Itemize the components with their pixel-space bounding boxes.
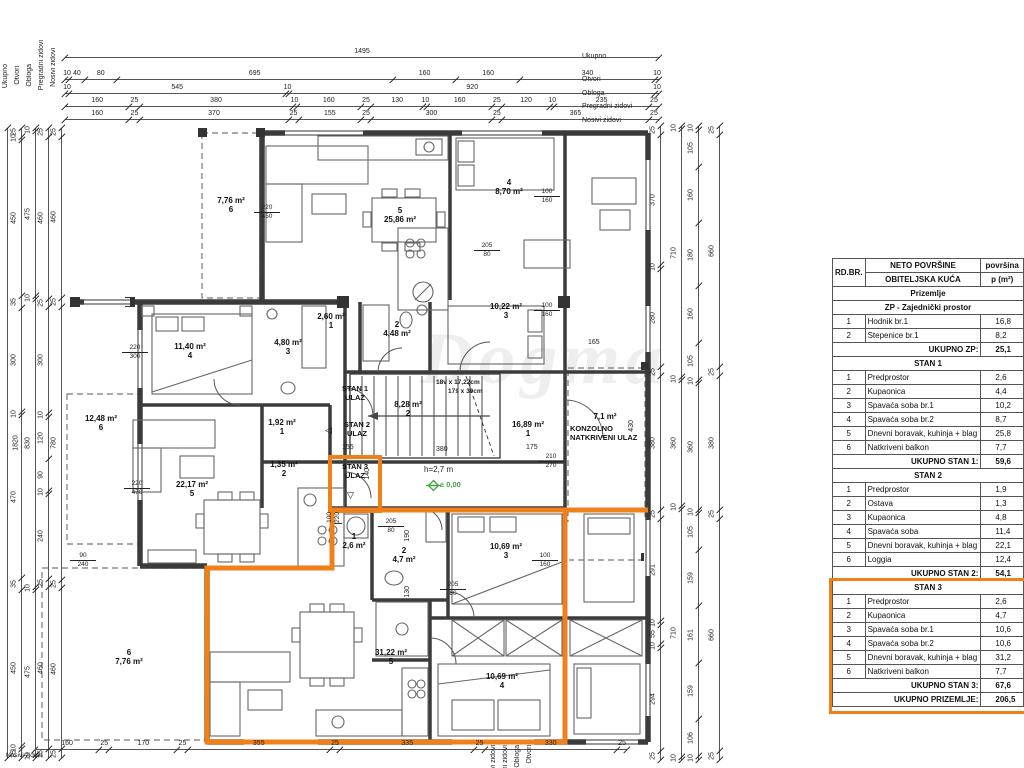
text-label: Predprostor <box>865 483 981 497</box>
dim-value: 159 <box>688 573 695 585</box>
rect-shape <box>260 514 268 528</box>
room-label-bath-47: 24,7 m² <box>380 546 428 564</box>
rect-shape <box>210 652 290 682</box>
dim-value: 460 <box>38 212 45 224</box>
dim-value: 10 <box>688 124 695 132</box>
dim-value: 25 <box>650 752 657 760</box>
ellipse-shape <box>385 571 403 585</box>
room-number: 6 <box>70 423 132 432</box>
rect-shape <box>437 212 445 227</box>
dim-line <box>48 128 49 758</box>
rect-shape <box>528 336 542 358</box>
text-label: 1 <box>833 371 866 385</box>
circle-shape <box>396 623 408 635</box>
dim-value: 25 <box>38 299 45 307</box>
text-label: 80 <box>474 250 500 259</box>
tbody-shape: STAN 31Predprostor2,62Kupaonica4,73Spava… <box>833 581 1024 693</box>
floorplan-canvas: Dogma <box>0 0 1024 768</box>
table-row: 4Spavaća soba br.28,7 <box>833 413 1024 427</box>
legend-left-ukupno: Ukupno <box>2 64 9 88</box>
text-label: Natkriveni balkon <box>865 441 981 455</box>
dim-line <box>61 128 62 758</box>
text-label: 1 <box>833 595 866 609</box>
text-label: STAN 3 <box>833 581 1024 595</box>
text-label: 16,8 <box>981 315 1024 329</box>
room-area: 22,17 m² <box>160 480 224 489</box>
dim-value: 291 <box>650 564 657 576</box>
rect-shape <box>458 517 484 532</box>
dim-value: 10 <box>671 504 678 512</box>
dim-value: 25 <box>618 740 626 747</box>
text-label: 80 <box>378 526 404 535</box>
opening-size-label: 100160 <box>532 552 558 569</box>
table-section-row: STAN 2 <box>833 469 1024 483</box>
circle-shape <box>417 250 425 258</box>
legend-bottom-obloga: Obloga <box>514 745 521 768</box>
rect-shape <box>586 738 638 746</box>
text-label: 8,2 <box>981 329 1024 343</box>
rect-shape <box>218 554 232 562</box>
opening-size-label: 100220 <box>326 512 342 524</box>
table-section-row: STAN 3 <box>833 581 1024 595</box>
text-label: Kupaonica <box>865 385 981 399</box>
legend-bottom-pregradni: Pregradni zidovi <box>502 745 509 768</box>
ellipse-shape <box>281 382 295 394</box>
dim-value: 35 <box>11 580 18 588</box>
dim-value: 360 <box>688 441 695 453</box>
rect-shape <box>204 500 260 554</box>
text-label: 100 <box>326 512 334 524</box>
dim-value: 25 <box>179 740 187 747</box>
text-label: 3 <box>833 623 866 637</box>
table-row: 6Natkriveni balkon7,7 <box>833 441 1024 455</box>
table-row: 4Spavaća soba br.210,6 <box>833 637 1024 651</box>
dim-value: 25 <box>709 368 716 376</box>
text-label: 220 <box>254 204 280 212</box>
rect-shape <box>354 628 362 642</box>
dim-value: 25 <box>493 110 501 117</box>
text-label: 450 <box>254 212 280 221</box>
dim-value: 10 <box>63 70 71 77</box>
legend-left-pregradni: Pregradni zidovi <box>38 40 45 90</box>
dim-value: 160 <box>482 70 494 77</box>
table-row: 5Dnevni boravak, kuhinja + blag25,8 <box>833 427 1024 441</box>
dim-value: 160 <box>688 309 695 321</box>
dim-line <box>681 126 682 760</box>
level-label: ± 0,00 <box>440 481 461 489</box>
dim-value: 475 <box>25 208 32 220</box>
table-section-row: STAN 1 <box>833 357 1024 371</box>
table-section-row: ZP - Zajednički prostor <box>833 301 1024 315</box>
dim-line <box>65 93 659 94</box>
legend-right-otvori: Otvori <box>582 76 601 83</box>
opening-size-label: 20580 <box>440 581 466 598</box>
inner-dim-140: 140 <box>364 468 371 480</box>
text-label: 100 <box>534 188 560 196</box>
dim-value: 10 <box>688 754 695 762</box>
legend-bottom-left: Nosivi zidovi <box>6 753 42 760</box>
table-row: 2Ostava1,3 <box>833 497 1024 511</box>
rect-shape <box>452 700 494 730</box>
room-label-bedroom-1069-4: 10,69 m²4 <box>470 672 534 690</box>
dim-value: 920 <box>466 84 478 91</box>
dim-value: 10 <box>650 619 657 627</box>
dim-value: 10 <box>650 642 657 650</box>
path-shape <box>415 284 431 300</box>
text-label: Dnevni boravak, kuhinja + blag <box>865 427 981 441</box>
text-label: 5 <box>833 539 866 553</box>
text-label: površina <box>981 259 1024 273</box>
dim-value: 130 <box>391 97 403 104</box>
dim-value: 25 <box>650 510 657 518</box>
room-area: 12,48 m² <box>70 414 132 423</box>
dim-value: 300 <box>11 354 18 366</box>
room-label-bedroom-870: 48,70 m² <box>482 178 536 196</box>
text-label: 3 <box>833 399 866 413</box>
room-number: 2 <box>380 409 436 418</box>
dim-value: 10 <box>688 508 695 516</box>
dim-value: 25 <box>51 298 58 306</box>
room-label-storage-135: 1,35 m²2 <box>258 460 310 478</box>
room-label-entry-260: 2,60 m²1 <box>304 312 358 330</box>
rect-shape <box>202 133 260 298</box>
tbody-shape: Prizemlje <box>833 287 1024 301</box>
text-label: 160 <box>534 196 560 205</box>
rect-shape <box>256 128 265 137</box>
table-total-row: UKUPNO STAN 1:59,6 <box>833 455 1024 469</box>
dim-line <box>660 126 661 760</box>
inner-dim-155: 155 <box>342 444 354 451</box>
text-label: 10,6 <box>981 623 1024 637</box>
room-label-bedroom-1140: 11,40 m²4 <box>158 342 222 360</box>
table-row: 1Predprostor2,6 <box>833 371 1024 385</box>
tbody-shape: STAN 11Predprostor2,62Kupaonica4,43Spava… <box>833 357 1024 469</box>
room-number: 5 <box>368 206 432 215</box>
room-area: 10,69 m² <box>470 672 534 681</box>
legend-right-ukupno: Ukupno <box>582 53 606 60</box>
room-label-hall-1689: 16,89 m²1 <box>498 420 558 438</box>
circle-shape <box>408 680 416 688</box>
dim-value: 25 <box>38 128 45 136</box>
rect-shape <box>240 554 254 562</box>
rect-shape <box>70 297 80 307</box>
room-number: 3 <box>474 551 538 560</box>
text-label: Spavaća soba br.2 <box>865 413 981 427</box>
text-label: 1,9 <box>981 483 1024 497</box>
text-label: 240 <box>70 560 96 569</box>
table-row: 3Kupaonica4,8 <box>833 511 1024 525</box>
entrance-arrow-down-icon: ▽ <box>347 490 354 501</box>
rect-shape <box>248 690 282 710</box>
opening-size-label: 100160 <box>534 302 560 319</box>
room-label-bedroom-1069-3: 10,69 m²3 <box>474 542 538 560</box>
tbody-shape: STAN 21Predprostor1,92Ostava1,33Kupaonic… <box>833 469 1024 581</box>
circle-shape <box>267 309 277 319</box>
circle-shape <box>304 494 316 506</box>
opening-size-label: 220450 <box>254 204 280 221</box>
text-label: 31,2 <box>981 651 1024 665</box>
path-shape <box>570 620 642 656</box>
text-label: 205 <box>474 242 500 250</box>
text-label: 2 <box>833 497 866 511</box>
room-label-living-top: 525,86 m² <box>368 206 432 224</box>
dim-value: 25 <box>650 97 658 104</box>
text-label: 210 <box>538 453 564 461</box>
text-label: 1 <box>833 315 866 329</box>
dim-value: 25 <box>476 740 484 747</box>
path-shape <box>452 620 504 656</box>
table-row: 1Predprostor1,9 <box>833 483 1024 497</box>
text-label: 8,7 <box>981 413 1024 427</box>
room-area: 4,48 m² <box>368 329 426 338</box>
text-label: Kupaonica <box>865 511 981 525</box>
text-label: RD.BR. <box>833 259 866 287</box>
legend-right-nosivi: Nosivi zidovi <box>582 117 621 124</box>
room-number: 1 <box>332 532 376 541</box>
inner-dim-380: 380 <box>436 446 448 453</box>
rect-shape <box>180 456 214 478</box>
rect-shape <box>198 128 207 137</box>
dim-value: 120 <box>38 432 45 444</box>
legend-left-obloga: Obloga <box>26 64 33 87</box>
room-area: 10,22 m² <box>474 302 538 311</box>
table-row: 3Spavaća soba br.110,6 <box>833 623 1024 637</box>
text-label: 4,7 <box>981 609 1024 623</box>
dim-value: 25 <box>51 580 58 588</box>
rect-shape <box>588 518 630 534</box>
dim-value: 1820 <box>13 435 20 451</box>
room-label-terrace-top: 7,76 m²6 <box>202 196 260 214</box>
dim-line <box>7 128 8 758</box>
table-row: 5Dnevni boravak, kuhinja + blag22,1 <box>833 539 1024 553</box>
inner-dim-130: 130 <box>404 586 411 598</box>
room-number: 1 <box>498 429 558 438</box>
text-label: 4 <box>833 413 866 427</box>
legend-right-pregradni: Pregradni zidovi <box>582 103 632 110</box>
text-label: 160 <box>532 560 558 569</box>
opening-size-label: 220470 <box>124 480 150 497</box>
circle-shape <box>417 690 425 698</box>
dim-line <box>35 128 36 758</box>
room-area: 8,28 m² <box>380 400 436 409</box>
path-shape <box>378 348 402 372</box>
circle-shape <box>408 690 416 698</box>
room-area: 2,6 m² <box>332 541 376 550</box>
text-label: Hodnik br.1 <box>865 315 981 329</box>
dim-value: 25 <box>290 110 298 117</box>
text-label: Spavaća soba br.2 <box>865 637 981 651</box>
text-label: 2,6 <box>981 595 1024 609</box>
inner-dim-190: 190 <box>404 530 411 542</box>
table-section-row: Prizemlje <box>833 287 1024 301</box>
text-label: Spavaća soba br.1 <box>865 623 981 637</box>
rect-shape <box>644 664 652 716</box>
dim-value: 170 <box>138 740 150 747</box>
table-row: 3Spavaća soba br.110,2 <box>833 399 1024 413</box>
text-label: Spavaća soba br.1 <box>865 399 981 413</box>
dim-value: 55 <box>650 631 657 639</box>
circle-shape <box>318 526 326 534</box>
text-label: 25,1 <box>981 343 1024 357</box>
text-label: 67,6 <box>981 679 1024 693</box>
dim-value: 380 <box>709 437 716 449</box>
text-label: Spavaća soba <box>865 525 981 539</box>
rect-shape <box>330 604 344 612</box>
dim-value: 25 <box>362 97 370 104</box>
text-label: 220 <box>124 480 150 488</box>
dim-value: 25 <box>650 126 657 134</box>
inner-dim-165: 165 <box>588 339 600 346</box>
dim-value: 10 <box>422 97 430 104</box>
dim-value: 355 <box>253 740 265 747</box>
text-label: ZP - Zajednički prostor <box>833 301 1024 315</box>
dim-line <box>65 79 659 80</box>
text-label: Stepenice br.1 <box>865 329 981 343</box>
dim-value: 300 <box>426 110 438 117</box>
dim-value: 10 <box>11 410 18 418</box>
circle-shape <box>424 142 434 152</box>
room-area: 25,86 m² <box>368 215 432 224</box>
legend-bottom-otvori: Otvori <box>526 745 533 764</box>
text-label: Natkriveni balkon <box>865 665 981 679</box>
entrance-arrow-left-icon: ◁ <box>325 425 332 436</box>
table-row: 2Kupaonica4,4 <box>833 385 1024 399</box>
dim-value: 470 <box>11 491 18 503</box>
dim-value: 25 <box>38 579 45 587</box>
dim-value: 160 <box>688 189 695 201</box>
dim-value: 25 <box>331 740 339 747</box>
table-row: 5Dnevni boravak, kuhinja + blag31,2 <box>833 651 1024 665</box>
text-label: 1 <box>833 483 866 497</box>
text-label: 90 <box>70 552 96 560</box>
text-label: 80 <box>440 589 466 598</box>
rect-shape <box>524 240 570 268</box>
room-area: 4,7 m² <box>380 555 428 564</box>
text-label: 4 <box>833 637 866 651</box>
table-total-row: UKUPNO STAN 3:67,6 <box>833 679 1024 693</box>
room-area: 11,40 m² <box>158 342 222 351</box>
rect-shape <box>310 678 324 686</box>
room-label-bedroom-1022: 10,22 m²3 <box>474 302 538 320</box>
dim-line <box>21 128 22 758</box>
rect-shape <box>458 165 474 186</box>
text-label: 10,2 <box>981 399 1024 413</box>
dim-value: 545 <box>171 84 183 91</box>
dim-value: 460 <box>51 663 58 675</box>
dim-value: 25 <box>51 128 58 136</box>
dim-value: 370 <box>650 194 657 206</box>
opening-size-label: 20580 <box>378 518 404 535</box>
dim-value: 25 <box>131 110 139 117</box>
dim-value: 300 <box>38 354 45 366</box>
rect-shape <box>458 141 474 162</box>
dim-value: 450 <box>11 662 18 674</box>
dim-value: 25 <box>493 97 501 104</box>
text-label: Predprostor <box>865 371 981 385</box>
room-label-living-2217: 22,17 m²5 <box>160 480 224 498</box>
text-label: 2 <box>833 385 866 399</box>
path-shape <box>214 379 240 405</box>
rect-shape <box>133 420 215 448</box>
dim-value: 10 <box>25 584 32 592</box>
legend-left-otvori: Otvori <box>14 66 21 85</box>
text-label: 205 <box>440 581 466 589</box>
table-row: 4Spavaća soba11,4 <box>833 525 1024 539</box>
tbody-shape: UKUPNO PRIZEMLJE:206,5 <box>833 693 1024 707</box>
dim-value: 294 <box>650 694 657 706</box>
text-label: 54,1 <box>981 567 1024 581</box>
room-area: 1,35 m² <box>258 460 310 469</box>
dim-value: 450 <box>11 212 18 224</box>
dim-value: 10 <box>671 124 678 132</box>
dim-value: 25 <box>709 510 716 518</box>
text-label: UKUPNO STAN 1: <box>833 455 981 469</box>
room-number: 4 <box>470 681 534 690</box>
dim-value: 25 <box>709 752 716 760</box>
dim-value: 10 <box>653 84 661 91</box>
text-label: UKUPNO PRIZEMLJE: <box>833 693 981 707</box>
room-number: 4 <box>482 178 536 187</box>
dim-value: 335 <box>401 740 413 747</box>
dim-value: 161 <box>688 629 695 641</box>
room-number: 6 <box>202 205 260 214</box>
dim-line <box>65 57 659 58</box>
rect-shape <box>316 710 402 736</box>
room-number: 5 <box>358 657 424 666</box>
room-number: 3 <box>258 347 318 356</box>
room-label-entry-26: 12,6 m² <box>332 532 376 550</box>
text-label: 7,1 m² <box>576 412 634 421</box>
dim-value: 10 <box>11 134 18 142</box>
text-label: 12,4 <box>981 553 1024 567</box>
dim-value: 240 <box>38 530 45 542</box>
apartment-entrance-label-2: STAN 2 ULAZ <box>336 420 378 439</box>
text-label: 4,4 <box>981 385 1024 399</box>
path-shape <box>152 360 252 392</box>
path-shape <box>506 620 562 656</box>
room-number: 4 <box>158 351 222 360</box>
rect-shape <box>156 317 178 331</box>
dim-value: 120 <box>520 97 532 104</box>
dim-value: 160 <box>91 97 103 104</box>
rect-shape <box>196 514 204 528</box>
text-label: 59,6 <box>981 455 1024 469</box>
dim-value: 105 <box>688 355 695 367</box>
text-label: OBITELJSKA KUĆA <box>865 273 981 287</box>
areas-table: RD.BR.NETO POVRŠINEpovršinaOBITELJSKA KU… <box>832 258 1024 707</box>
text-label: 6 <box>833 665 866 679</box>
dim-value: 365 <box>570 110 582 117</box>
dim-value: 830 <box>25 437 32 449</box>
dim-value: 370 <box>208 110 220 117</box>
path-shape <box>460 342 490 372</box>
dim-value: 10 <box>671 375 678 383</box>
dim-value: 106 <box>688 732 695 744</box>
opening-size-label: 220300 <box>122 344 148 361</box>
room-label-stairs-828: 8,28 m²2 <box>380 400 436 418</box>
dim-value: 160 <box>323 97 335 104</box>
dim-value: 10 <box>291 97 299 104</box>
dim-value: 25 <box>51 750 58 758</box>
rect-shape <box>641 362 649 370</box>
table-header-row: RD.BR.NETO POVRŠINEpovršina <box>833 259 1024 273</box>
text-label: 2 <box>833 329 866 343</box>
text-label: Loggia <box>865 553 981 567</box>
rect-shape <box>337 296 349 308</box>
dim-value: 460 <box>38 662 45 674</box>
rect-shape <box>298 488 344 566</box>
stairs-spec-1: 18v x 17,22cm <box>436 380 480 387</box>
